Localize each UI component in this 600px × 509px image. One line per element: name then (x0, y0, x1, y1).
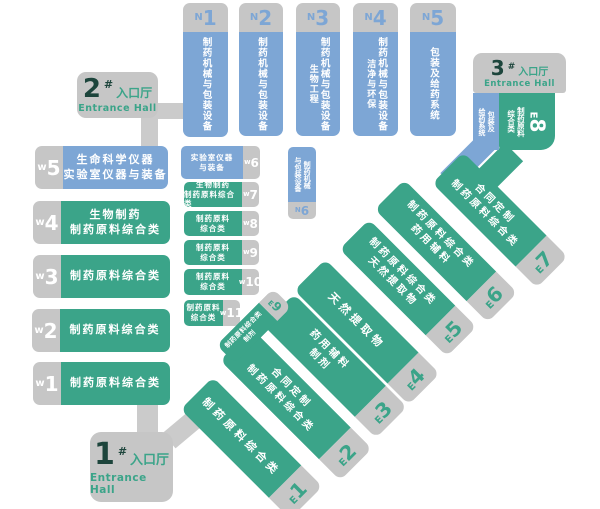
hall-w1-body: 制药原料综合类 (61, 362, 170, 405)
hall-w8-body: 制药原料综合类 (184, 211, 242, 236)
hall-w6-label: w6 (243, 146, 260, 179)
hall-n2-body: 制药机械与包装设备 (239, 32, 283, 136)
hall-w6-body: 实验室仪器与装备 (181, 146, 243, 179)
hall-n2-label: N2 (239, 3, 283, 32)
hall-w5[interactable]: w5 生命科学仪器实验室仪器与装备 (35, 146, 168, 189)
entrance-1-name-cn: 入口厅 (130, 454, 169, 469)
entrance-3-hash: # (508, 62, 516, 72)
entrance-1-hash: # (118, 446, 127, 459)
hall-w5-label: w5 (35, 146, 63, 189)
hall-w11-body: 制药原料综合类 (184, 300, 223, 326)
entrance-3-name-en: Entrance Hall (484, 80, 555, 90)
hall-w7-label: w7 (242, 182, 259, 207)
hall-w9-label: w9 (242, 240, 259, 265)
entrance-2-hash: # (104, 79, 113, 92)
hall-n5-label: N5 (410, 3, 456, 32)
hall-w1[interactable]: w1 制药原料综合类 (33, 362, 170, 405)
hall-n5[interactable]: N5 包装及给药系统 (410, 3, 456, 136)
hall-w10-body: 制药原料综合类 (184, 269, 242, 295)
hall-w9[interactable]: 制药原料综合类 w9 (184, 240, 259, 265)
hall-w2[interactable]: w2 制药原料综合类 (32, 309, 170, 352)
entrance-1-number: 1 (94, 438, 115, 473)
hall-n3-label: N3 (296, 3, 340, 32)
hall-w1-label: w1 (33, 362, 61, 405)
entrance-hall-2[interactable]: 2#入口厅 Entrance Hall (77, 72, 158, 118)
hall-n2[interactable]: N2 制药机械与包装设备 (239, 3, 283, 136)
hall-n1-body: 制药机械与包装设备 (183, 32, 228, 137)
hall-w5-body: 生命科学仪器实验室仪器与装备 (63, 146, 168, 189)
hall-n1[interactable]: N1 制药机械与包装设备 (183, 3, 228, 137)
hall-w10-label: w10 (242, 269, 259, 295)
hall-e8[interactable]: 制药原料综合类 E8 (499, 93, 555, 150)
hall-w9-body: 制药原料综合类 (184, 240, 242, 265)
hall-n1-label: N1 (183, 3, 228, 32)
hall-w4[interactable]: w4 生物制药制药原料综合类 (33, 201, 170, 244)
hall-w11-label: w11 (223, 300, 240, 326)
hall-w11[interactable]: 制药原料综合类 w11 (184, 300, 240, 326)
hall-n6[interactable]: 制药机械与包装设备 N6 (288, 147, 316, 219)
hall-w3[interactable]: w3 制药原料综合类 (33, 255, 170, 298)
entrance-3-number: 3 (491, 57, 505, 80)
corridor-entrance1-to-w1 (137, 404, 158, 433)
hall-w2-body: 制药原料综合类 (60, 309, 170, 352)
hall-n6-body: 制药机械与包装设备 (288, 147, 316, 202)
hall-n6-label: N6 (288, 202, 316, 219)
hall-n3-body: 制药机械与包装设备生物工程 (296, 32, 340, 136)
hall-n4[interactable]: N4 制药机械与包装设备洁净与环保 (353, 3, 398, 136)
entrance3-e8-complex: 3#入口厅 Entrance Hall 包装及给药系统 制药原料综合类 E8 (473, 53, 566, 150)
hall-w4-label: w4 (33, 201, 61, 244)
hall-w7-body: 生物制药制药原料综合类 (184, 182, 242, 207)
hall-w7[interactable]: 生物制药制药原料综合类 w7 (184, 182, 259, 207)
hall-n3[interactable]: N3 制药机械与包装设备生物工程 (296, 3, 340, 136)
hall-w3-body: 制药原料综合类 (61, 255, 170, 298)
hall-w8[interactable]: 制药原料综合类 w8 (184, 211, 259, 236)
entrance-hall-1[interactable]: 1#入口厅 Entrance Hall (90, 432, 173, 502)
hall-w2-label: w2 (32, 309, 60, 352)
hall-e8-packaging-strip[interactable]: 包装及给药系统 (473, 93, 499, 150)
entrance-3-name-cn: 入口厅 (518, 67, 548, 79)
hall-w10[interactable]: 制药原料综合类 w10 (184, 269, 259, 295)
hall-n4-label: N4 (353, 3, 398, 32)
entrance-2-name-en: Entrance Hall (78, 104, 156, 115)
expo-floorplan-map: N1 制药机械与包装设备 N2 制药机械与包装设备 N3 制药机械与包装设备生物… (0, 0, 600, 509)
hall-n5-body: 包装及给药系统 (410, 32, 456, 136)
entrance-hall-3[interactable]: 3#入口厅 Entrance Hall (473, 53, 566, 93)
entrance-1-name-en: Entrance Hall (90, 472, 173, 496)
hall-w4-body: 生物制药制药原料综合类 (61, 201, 170, 244)
hall-n4-body: 制药机械与包装设备洁净与环保 (353, 32, 398, 136)
hall-e8-label: E8 (526, 111, 550, 132)
entrance-2-number: 2 (83, 75, 101, 105)
entrance-2-name-cn: 入口厅 (116, 87, 152, 101)
hall-w6[interactable]: 实验室仪器与装备 w6 (181, 146, 260, 179)
hall-w3-label: w3 (33, 255, 61, 298)
hall-w8-label: w8 (242, 211, 259, 236)
